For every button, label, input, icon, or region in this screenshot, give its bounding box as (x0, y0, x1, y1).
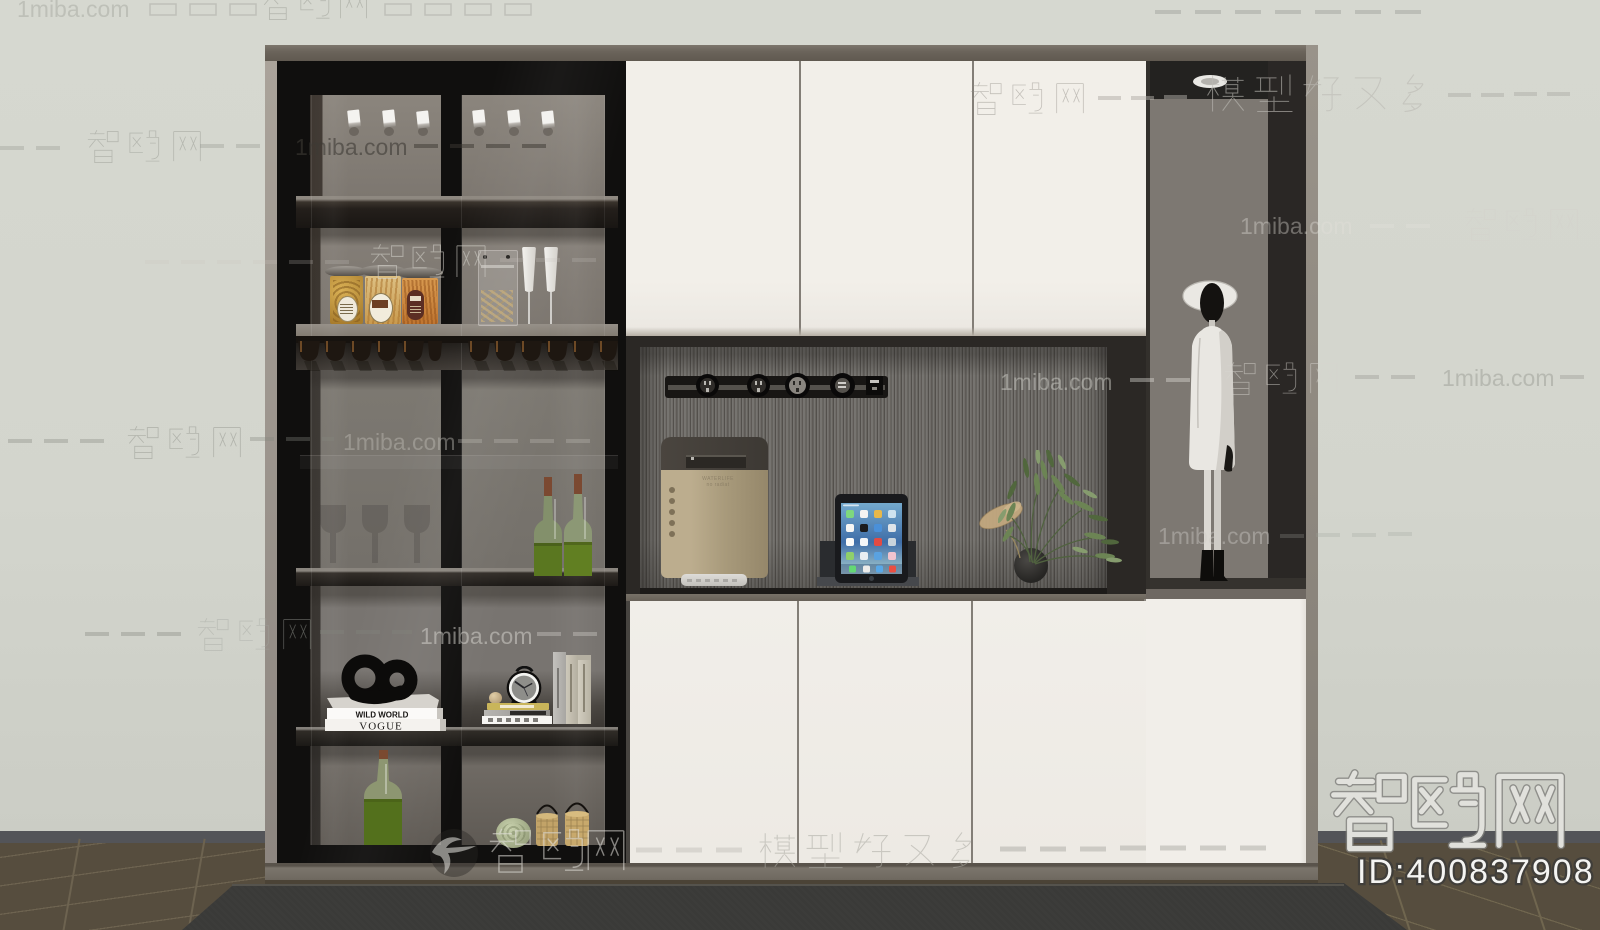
svg-text:1miba.com: 1miba.com (1442, 365, 1554, 391)
svg-text:1miba.com: 1miba.com (295, 134, 407, 160)
svg-text:1miba.com: 1miba.com (343, 429, 455, 455)
svg-text:1miba.com: 1miba.com (1240, 213, 1352, 239)
svg-text:1miba.com: 1miba.com (17, 0, 129, 22)
svg-text:1miba.com: 1miba.com (420, 623, 532, 649)
svg-text:1miba.com: 1miba.com (1000, 369, 1112, 395)
svg-text:ID:400837908: ID:400837908 (1357, 853, 1595, 891)
svg-text:1miba.com: 1miba.com (1158, 523, 1270, 549)
